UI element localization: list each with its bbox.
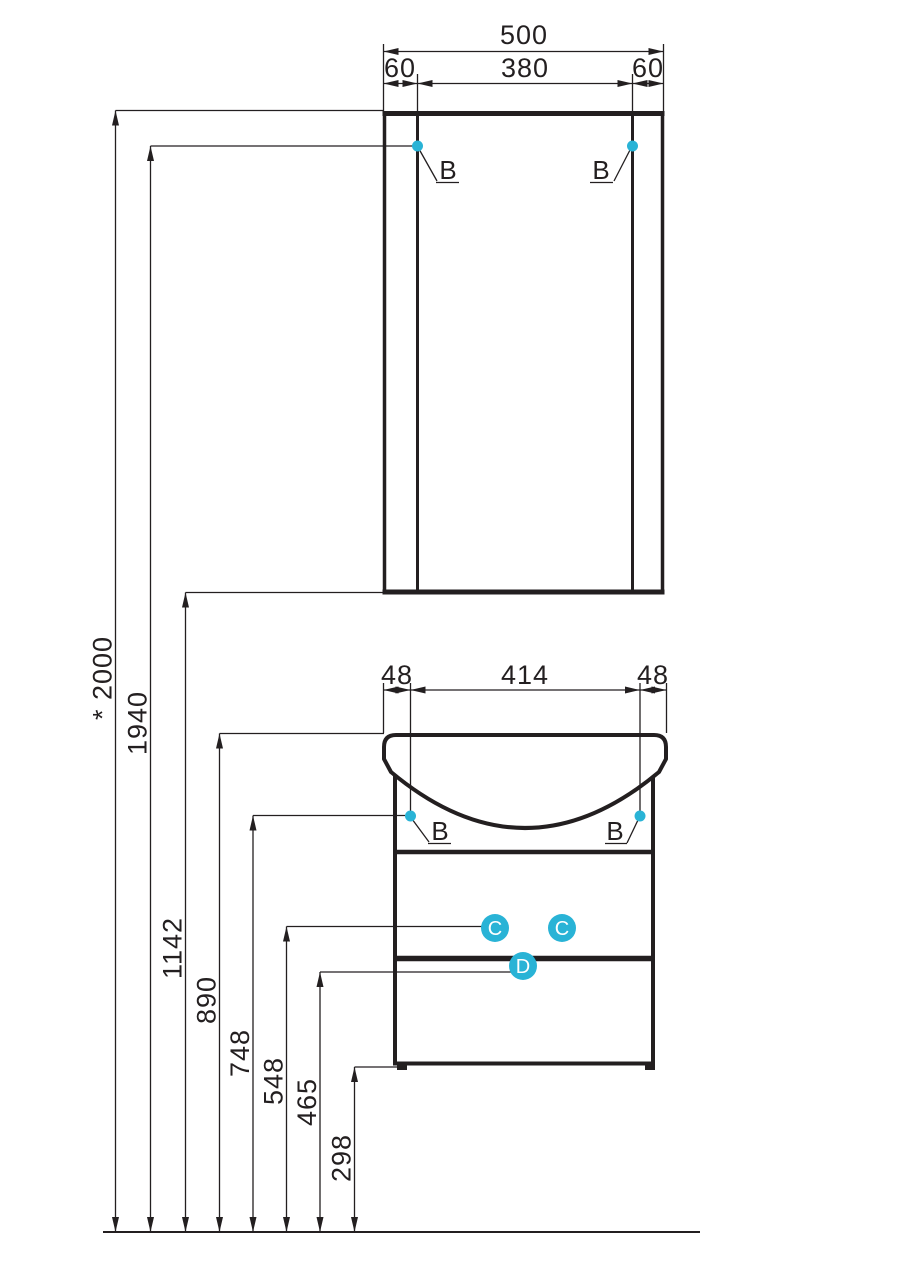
dim-label-60-left: 60 bbox=[384, 53, 416, 83]
marker-d-label: D bbox=[516, 956, 530, 978]
height-label-2000: * 2000 bbox=[88, 636, 118, 720]
callout-b-vanity-right: B bbox=[606, 816, 623, 846]
callout-b-mirror-right: B bbox=[592, 155, 609, 185]
mirror-callouts: B B bbox=[412, 141, 638, 186]
callout-b-mirror-left: B bbox=[439, 155, 456, 185]
fastening-point-b-mirror-right bbox=[627, 141, 638, 152]
dim-label-48-right: 48 bbox=[637, 660, 669, 690]
callout-leader bbox=[419, 149, 437, 181]
vanity-foot-left bbox=[397, 1066, 407, 1071]
washbasin-outline bbox=[384, 735, 666, 828]
height-label-1142: 1142 bbox=[158, 917, 188, 979]
height-label-748: 748 bbox=[225, 1029, 255, 1077]
dim-label-48-left: 48 bbox=[381, 660, 413, 690]
mirror-width-dimensions: 500 60 380 60 bbox=[384, 20, 665, 112]
dim-label-414: 414 bbox=[501, 660, 549, 690]
dim-label-380: 380 bbox=[501, 53, 549, 83]
vanity-cd-markers: C C D bbox=[481, 914, 576, 980]
height-label-298: 298 bbox=[327, 1134, 357, 1182]
callout-leader bbox=[412, 819, 429, 842]
fastening-point-b-mirror-left bbox=[412, 141, 423, 152]
callout-b-vanity-left: B bbox=[431, 816, 448, 846]
callout-leader bbox=[627, 819, 639, 843]
mirror-cabinet bbox=[383, 114, 665, 593]
height-label-1940: 1940 bbox=[123, 691, 153, 755]
marker-c-right-label: C bbox=[555, 918, 569, 940]
vanity-foot-right bbox=[645, 1066, 655, 1071]
height-label-890: 890 bbox=[192, 976, 222, 1024]
installation-drawing-page: 500 60 380 60 48 414 48 bbox=[0, 0, 900, 1273]
dim-label-500: 500 bbox=[500, 20, 548, 50]
callout-leader bbox=[614, 149, 631, 181]
marker-c-left-label: C bbox=[488, 918, 502, 940]
installation-drawing: 500 60 380 60 48 414 48 bbox=[0, 0, 900, 1273]
height-label-465: 465 bbox=[292, 1078, 322, 1126]
height-label-548: 548 bbox=[259, 1057, 289, 1105]
mirror-cabinet-outline bbox=[385, 114, 663, 593]
dim-label-60-right: 60 bbox=[632, 53, 664, 83]
fastening-point-b-vanity-left bbox=[405, 811, 416, 822]
vanity-unit bbox=[384, 735, 666, 1070]
fastening-point-b-vanity-right bbox=[635, 811, 646, 822]
